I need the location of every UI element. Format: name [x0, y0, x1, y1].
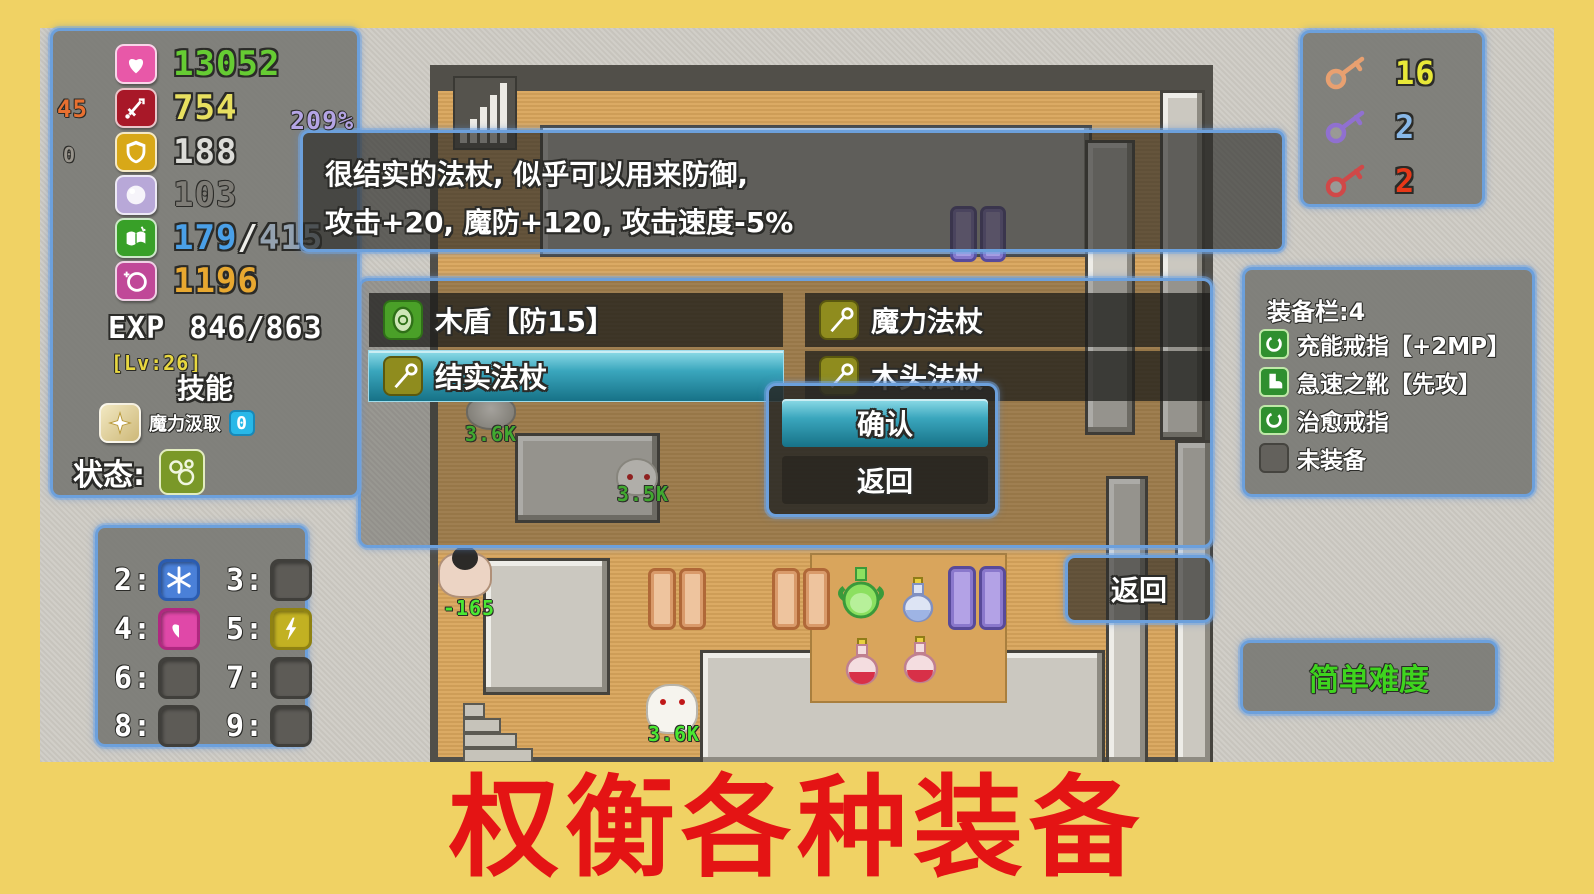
- wand-icon: [383, 356, 423, 396]
- equipment-item-charge-ring[interactable]: 充能戒指【+2MP】: [1259, 328, 1510, 360]
- def-bonus-value: 0: [63, 143, 76, 167]
- atk-bonus-value: 45: [57, 95, 88, 123]
- hotkey-label: 4:: [114, 612, 152, 647]
- mp-current: 179: [173, 218, 237, 258]
- tooltip-line-2: 攻击+20, 魔防+120, 攻击速度-5%: [325, 201, 793, 241]
- keys-panel: 16 2 2: [1300, 30, 1485, 207]
- skills-header: 技能: [53, 367, 357, 407]
- confirm-dialog: 确认 返回: [766, 383, 998, 517]
- hotkey-label: 7:: [226, 661, 264, 696]
- wall-block: [483, 558, 610, 695]
- menu-item-wood-shield[interactable]: 木盾【防15】: [369, 293, 783, 347]
- equipment-item-heal-ring[interactable]: 治愈戒指: [1259, 404, 1389, 436]
- hotkey-slot-lightning[interactable]: [270, 608, 312, 650]
- wand-icon: [819, 300, 859, 340]
- stats-panel: 45 0 13052 754 188 103 179/415: [50, 28, 360, 498]
- yellow-key-icon: [1323, 50, 1369, 96]
- menu-item-label: 结实法杖: [435, 356, 547, 396]
- skill-count-badge: 0: [229, 410, 255, 436]
- equipment-item-label: 未装备: [1297, 441, 1366, 475]
- ring-icon: [1259, 405, 1289, 435]
- difficulty-badge: 简单难度: [1240, 640, 1498, 714]
- percent-stat-badge: 209%: [290, 106, 354, 135]
- menu-item-sturdy-staff-selected[interactable]: 结实法杖: [369, 351, 783, 401]
- hotkey-label: 3:: [226, 563, 264, 598]
- hotkey-slot-snowflake[interactable]: [158, 559, 200, 601]
- boots-icon: [1259, 367, 1289, 397]
- mp-separator: /: [237, 218, 258, 258]
- status-label: 状态:: [73, 450, 145, 494]
- dialog-back-button[interactable]: 返回: [782, 456, 988, 504]
- equipment-item-label: 充能戒指【+2MP】: [1297, 327, 1510, 361]
- empty-slot-icon: [1259, 443, 1289, 473]
- menu-item-label: 木盾【防15】: [435, 300, 614, 340]
- red-potion: [901, 636, 939, 688]
- equipment-title: 装备栏:4: [1267, 292, 1365, 327]
- monster-dark-imp: [438, 552, 492, 598]
- exp-value: 846/863: [189, 311, 322, 346]
- equipment-item-label: 急速之靴【先攻】: [1297, 365, 1481, 399]
- equipment-item-empty-slot[interactable]: 未装备: [1259, 442, 1366, 474]
- tooltip-line-1: 很结实的法杖, 似乎可以用来防御,: [325, 153, 748, 193]
- monster-damage-label: -165: [436, 596, 502, 620]
- red-potion: [843, 638, 881, 690]
- game-window: 3.6K 3.5K -165 3.6K: [0, 0, 1594, 894]
- attack-icon: [115, 88, 157, 128]
- map-wall-top: [430, 65, 1213, 91]
- gold-coin-icon: [115, 261, 157, 301]
- orange-door: [648, 568, 706, 630]
- attack-value: 754: [173, 88, 237, 128]
- blue-potion: [901, 576, 935, 628]
- hotkey-slot-empty[interactable]: [158, 705, 200, 747]
- purple-key-icon: [1323, 104, 1369, 150]
- gold-value: 1196: [173, 261, 259, 301]
- equipment-panel: 装备栏:4 充能戒指【+2MP】 急速之靴【先攻】 治愈戒指 未装备: [1242, 267, 1535, 497]
- purple-door: [948, 566, 1006, 630]
- mdef-orb-icon: [115, 175, 157, 215]
- back-button[interactable]: 返回: [1065, 555, 1213, 623]
- hotkey-label: 9:: [226, 709, 264, 744]
- menu-item-label: 魔力法杖: [871, 300, 983, 340]
- defense-icon: [115, 132, 157, 172]
- purple-key-count: 2: [1395, 108, 1415, 146]
- difficulty-label: 简单难度: [1309, 655, 1429, 699]
- defense-value: 188: [173, 132, 237, 172]
- skill-name: 魔力汲取: [149, 410, 221, 436]
- caption-banner: 权衡各种装备: [0, 762, 1594, 894]
- exp-label: EXP: [108, 311, 165, 346]
- hotkey-slot-empty[interactable]: [270, 657, 312, 699]
- ring-icon: [1259, 329, 1289, 359]
- orange-door: [772, 568, 830, 630]
- red-key-icon: [1323, 158, 1369, 204]
- hotkey-slot-empty[interactable]: [270, 559, 312, 601]
- hotkey-slot-empty[interactable]: [270, 705, 312, 747]
- hotkey-panel: 2: 3: 4: 5: 6: 7: 8:: [95, 525, 308, 747]
- red-key-count: 2: [1395, 162, 1415, 200]
- skill-icon: [99, 403, 141, 443]
- hotkey-slot-empty[interactable]: [158, 657, 200, 699]
- equipment-item-label: 治愈戒指: [1297, 403, 1389, 437]
- green-amphora-potion: [836, 566, 886, 624]
- hp-value: 13052: [173, 44, 280, 84]
- mdef-value: 103: [173, 175, 237, 215]
- mana-book-icon: [115, 218, 157, 258]
- hotkey-label: 8:: [114, 709, 152, 744]
- monster-damage-label: 3.6K: [642, 722, 706, 746]
- confirm-button[interactable]: 确认: [782, 399, 988, 447]
- hotkey-label: 6:: [114, 661, 152, 696]
- hp-icon: [115, 44, 157, 84]
- wood-shield-icon: [383, 300, 423, 340]
- hotkey-label: 5:: [226, 612, 264, 647]
- yellow-key-count: 16: [1395, 54, 1436, 92]
- equipment-item-speed-boots[interactable]: 急速之靴【先攻】: [1259, 366, 1481, 398]
- caption-text: 权衡各种装备: [449, 773, 1145, 883]
- hotkey-label: 2:: [114, 563, 152, 598]
- item-tooltip: 很结实的法杖, 似乎可以用来防御, 攻击+20, 魔防+120, 攻击速度-5%: [300, 130, 1285, 252]
- menu-item-magic-staff[interactable]: 魔力法杖: [805, 293, 1210, 347]
- status-bubbles-icon: [159, 449, 205, 495]
- hotkey-slot-heart[interactable]: [158, 608, 200, 650]
